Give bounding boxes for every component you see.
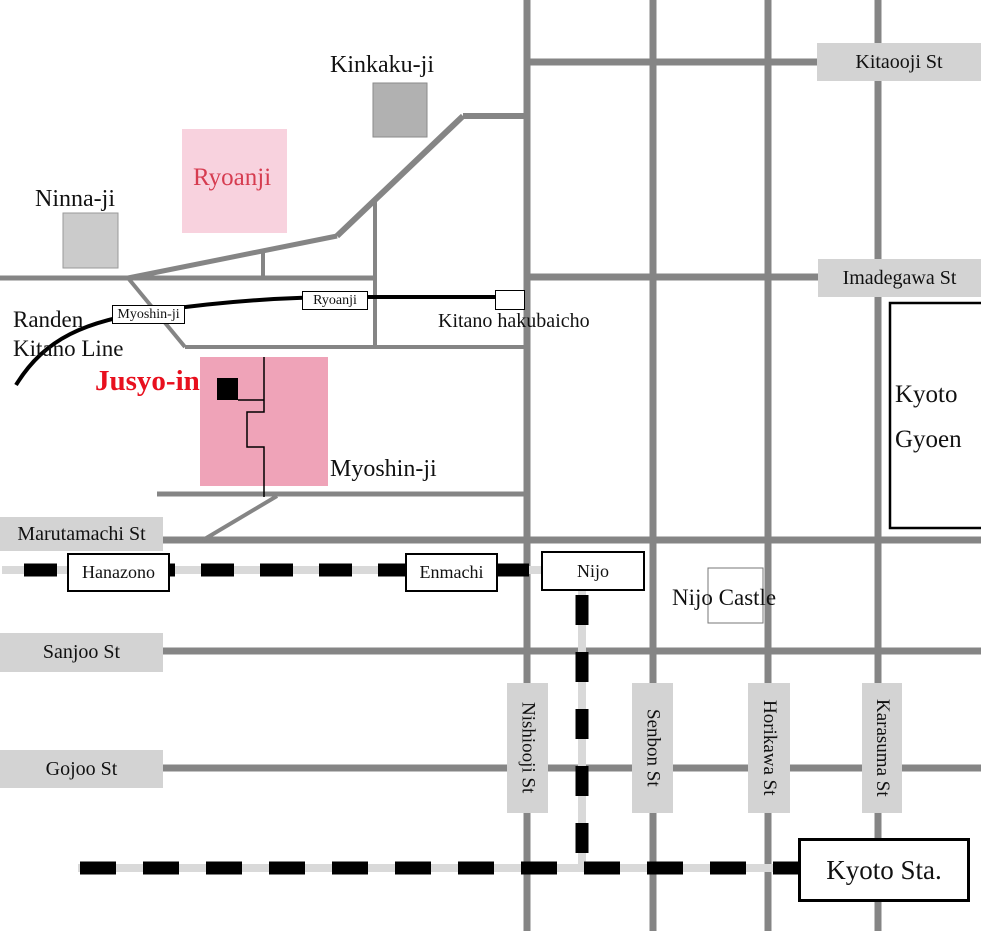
landmark-label-jusyoin: Jusyo-in: [95, 366, 200, 398]
street-label-sanjoo: Sanjoo St: [0, 633, 163, 672]
station-box-enmachi: Enmachi: [405, 553, 498, 592]
street-label-karasuma: Karasuma St: [862, 683, 902, 813]
street-label-sanjoo-text: Sanjoo St: [43, 641, 120, 664]
landmark-label-kyoto-gyoen: Kyoto Gyoen: [895, 372, 962, 462]
street-label-horikawa-text: Horikawa St: [758, 700, 780, 796]
street-label-marutamachi: Marutamachi St: [0, 517, 163, 551]
station-box-ryoanji: Ryoanji: [302, 291, 368, 310]
street-label-gojoo: Gojoo St: [0, 750, 163, 788]
station-box-nijo: Nijo: [541, 551, 645, 591]
landmark-label-nijo-castle: Nijo Castle: [672, 585, 776, 610]
ninnaji-grounds: [63, 213, 118, 268]
minor-road-diagonal-low: [128, 236, 337, 278]
street-label-senbon-text: Senbon St: [642, 709, 664, 787]
map-canvas: [0, 0, 981, 931]
station-label-kitano-hakubaicho: Kitano hakubaicho: [438, 310, 590, 332]
minor-road-hanazono-diagonal: [203, 496, 277, 540]
landmark-label-ryoanji: Ryoanji: [193, 164, 271, 192]
railway-label-randen-kitano-line: Randen Kitano Line: [13, 305, 124, 363]
landmark-label-kinkakuji: Kinkaku-ji: [330, 52, 434, 78]
station-label-myoshinji: Myoshin-ji: [117, 307, 179, 323]
railway-label-randen-line2: Kitano Line: [13, 334, 124, 363]
street-label-gojoo-text: Gojoo St: [46, 758, 118, 781]
station-label-nijo: Nijo: [577, 561, 609, 582]
kinkakuji-grounds: [373, 83, 427, 137]
street-label-karasuma-text: Karasuma St: [871, 699, 893, 797]
street-label-nishiooji: Nishiooji St: [507, 683, 548, 813]
landmark-label-kyoto-gyoen-line1: Kyoto: [895, 372, 962, 417]
station-label-enmachi: Enmachi: [420, 562, 484, 583]
landmark-label-myoshinji: Myoshin-ji: [330, 456, 437, 482]
station-label-kyoto: Kyoto Sta.: [826, 855, 942, 886]
street-label-kitaooji-text: Kitaooji St: [855, 51, 942, 74]
street-label-senbon: Senbon St: [632, 683, 673, 813]
station-label-hanazono: Hanazono: [82, 562, 155, 583]
station-box-kyoto: Kyoto Sta.: [798, 838, 970, 902]
jusyoin-building-marker: [217, 378, 238, 400]
street-label-imadegawa-text: Imadegawa St: [843, 267, 957, 290]
street-label-imadegawa: Imadegawa St: [818, 259, 981, 297]
landmark-label-ninnaji: Ninna-ji: [35, 186, 115, 212]
station-box-hanazono: Hanazono: [67, 553, 170, 592]
station-label-ryoanji: Ryoanji: [313, 293, 357, 309]
kyoto-access-map: Kitaooji St Imadegawa St Marutamachi St …: [0, 0, 981, 931]
landmark-label-kyoto-gyoen-line2: Gyoen: [895, 417, 962, 462]
railway-label-randen-line1: Randen: [13, 305, 124, 334]
street-label-horikawa: Horikawa St: [748, 683, 790, 813]
street-label-kitaooji: Kitaooji St: [817, 43, 981, 81]
street-label-nishiooji-text: Nishiooji St: [517, 702, 539, 793]
street-label-marutamachi-text: Marutamachi St: [17, 523, 145, 546]
station-box-kitano-hakubaicho: [495, 290, 525, 310]
